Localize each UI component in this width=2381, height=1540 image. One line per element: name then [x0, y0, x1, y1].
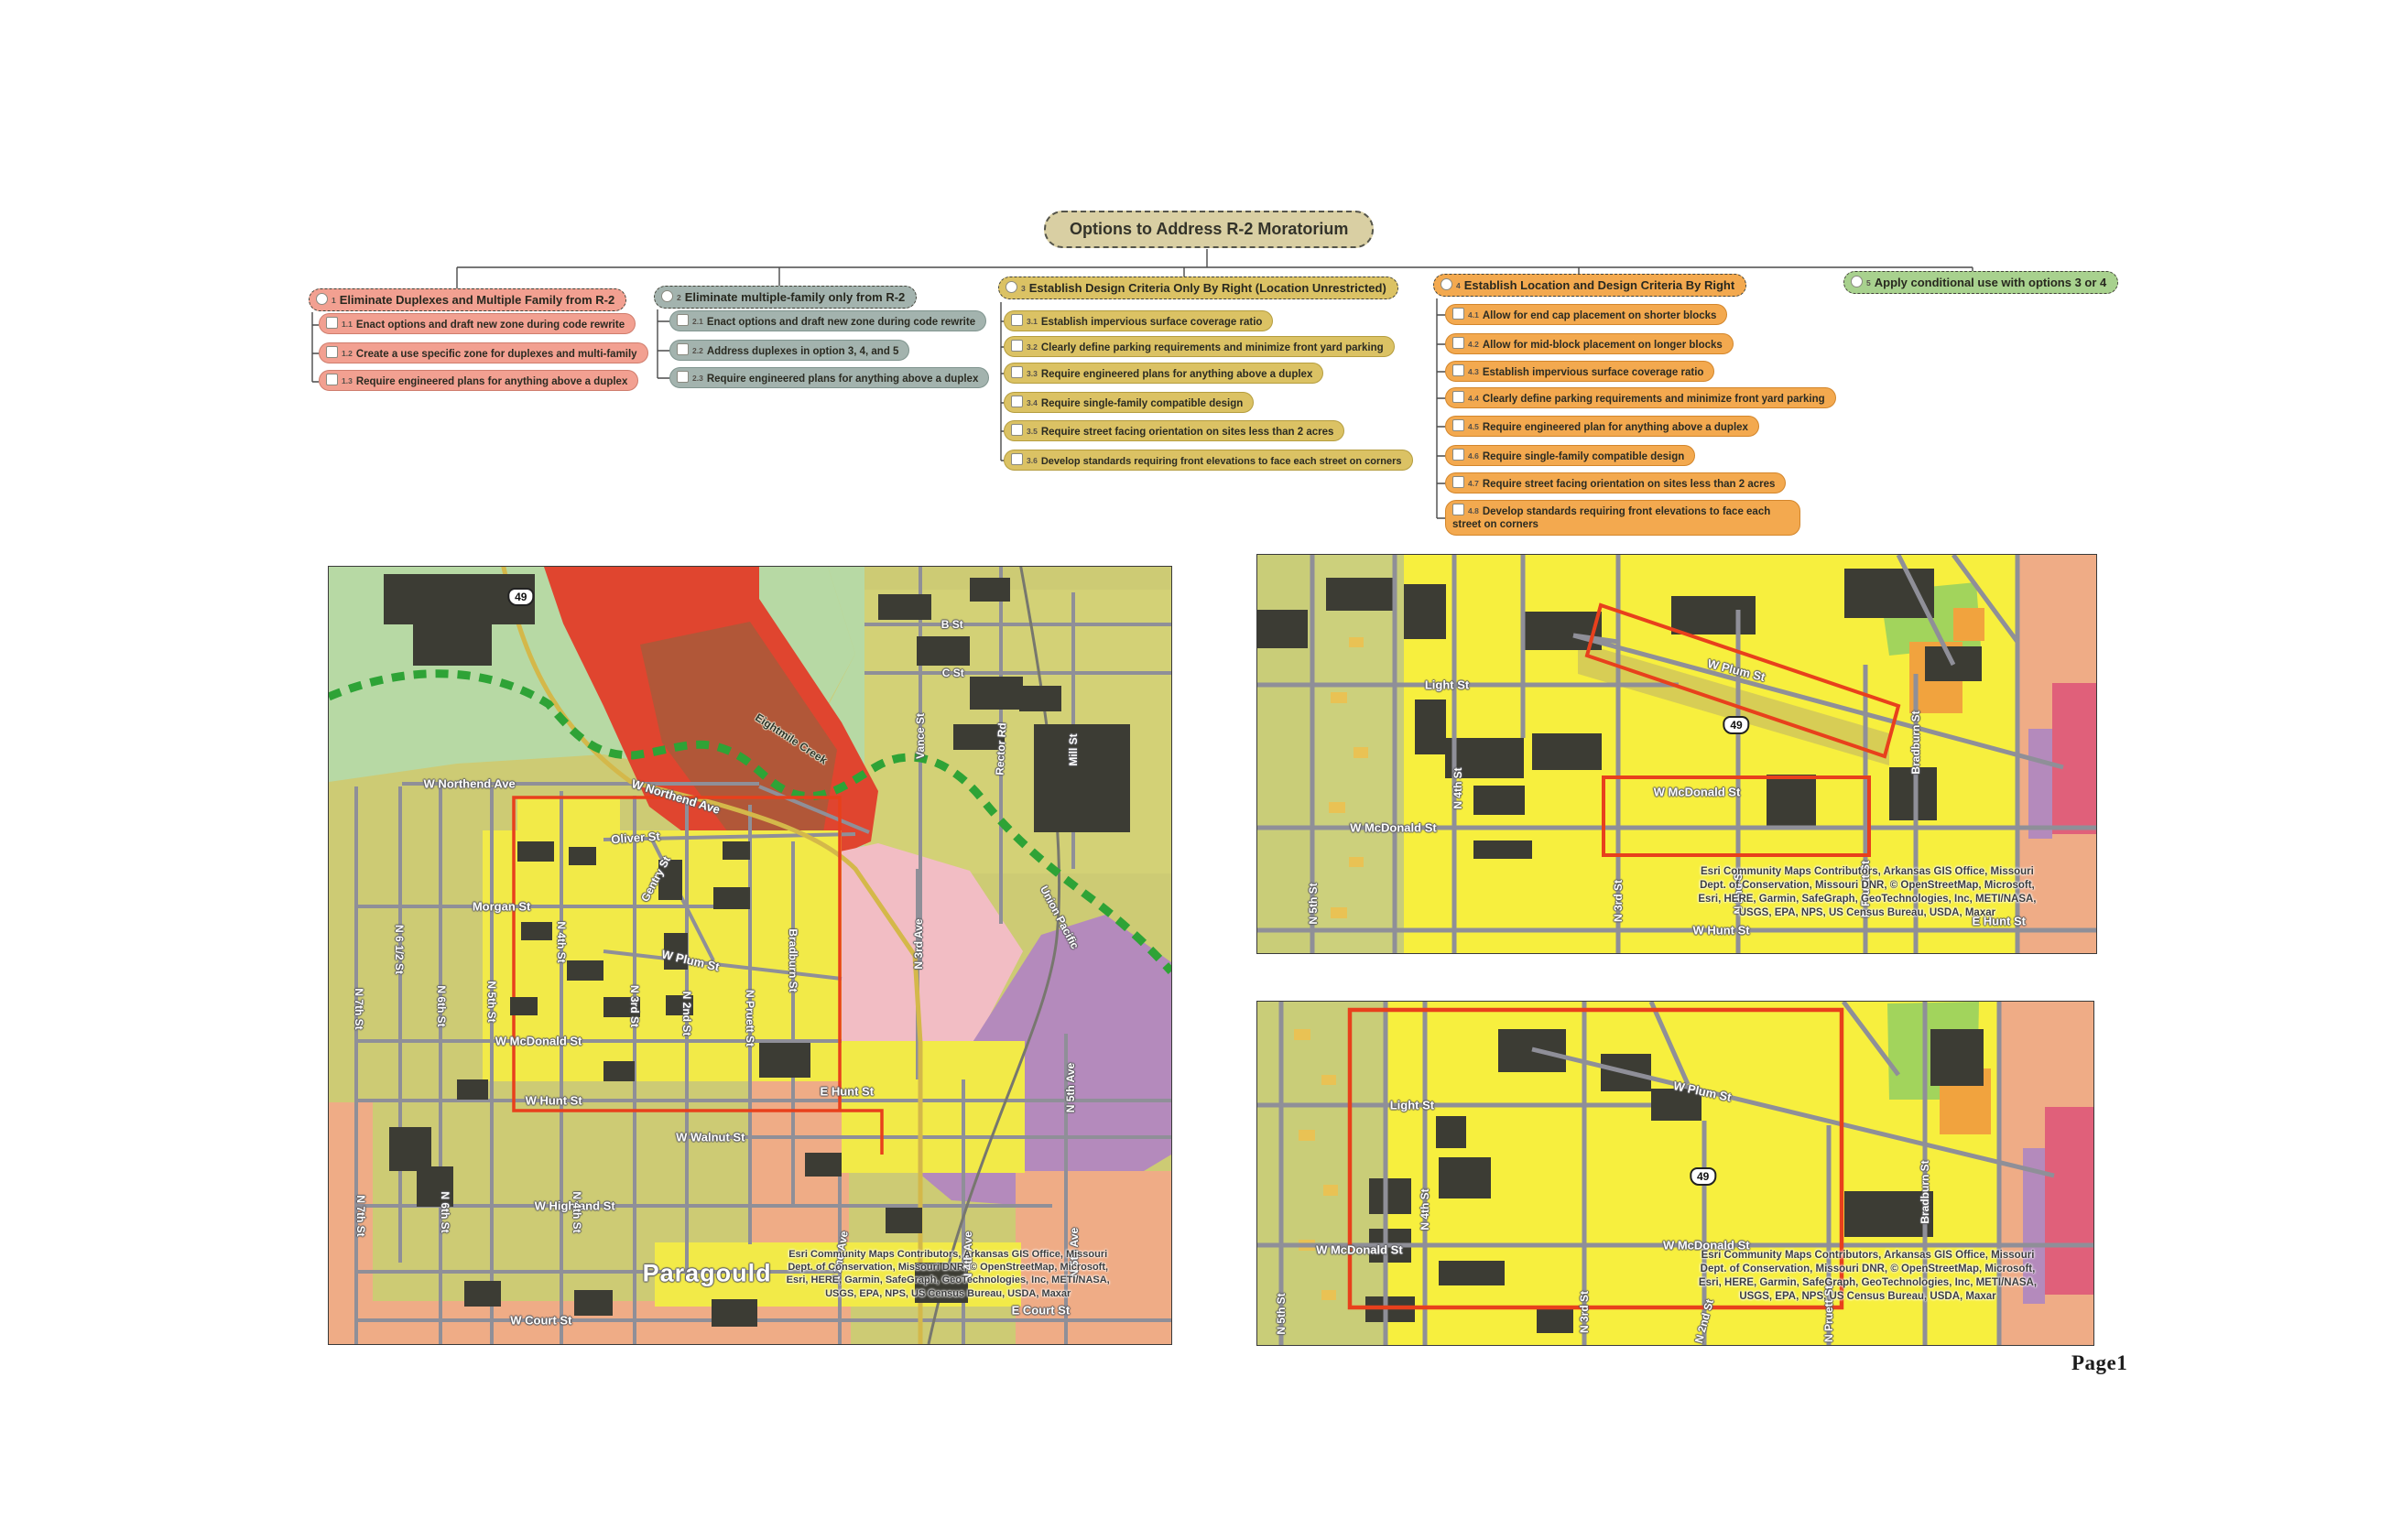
subitem-number: 4.8 — [1468, 506, 1479, 515]
option-number: 5 — [1866, 278, 1871, 287]
subitem-number: 1.1 — [342, 320, 353, 329]
street-label: Light St — [1390, 1098, 1434, 1112]
subitem-label: Develop standards requiring front elevat… — [1041, 456, 1402, 467]
railroad-label: Union Pacific — [1038, 884, 1082, 951]
subitem-number: 3.1 — [1027, 317, 1038, 326]
option-node-4: 4Establish Location and Design Criteria … — [1433, 274, 1746, 297]
street-label: W McDonald St — [1350, 820, 1437, 834]
checkbox-icon — [1452, 391, 1464, 403]
subitem-number: 4.3 — [1468, 367, 1479, 376]
subitem-label: Require engineered plans for anything ab… — [356, 376, 628, 387]
checkbox-icon — [1452, 419, 1464, 431]
subitem-node-4-3: 4.3Establish impervious surface coverage… — [1445, 361, 1714, 382]
street-label: N 2nd St — [1691, 1297, 1715, 1344]
subitem-label: Establish impervious surface coverage ra… — [1041, 317, 1263, 328]
subitem-node-1-1: 1.1Enact options and draft new zone duri… — [319, 313, 636, 334]
subitem-number: 4.4 — [1468, 394, 1479, 403]
subitem-number: 1.3 — [342, 376, 353, 385]
option-number: 1 — [332, 296, 336, 305]
street-label: W McDonald St — [495, 1034, 582, 1047]
attribution-line: USGS, EPA, NPS, US Census Bureau, USDA, … — [1649, 906, 2085, 920]
subitem-number: 4.5 — [1468, 422, 1479, 431]
street-label: W Plum St — [1706, 656, 1767, 684]
option-number: 3 — [1021, 284, 1026, 293]
subitem-node-4-8: 4.8Develop standards requiring front ele… — [1445, 500, 1800, 536]
highway-49-shield: 49 — [507, 588, 534, 606]
flowchart-title: Options to Address R-2 Moratorium — [1044, 211, 1374, 248]
checkbox-icon — [1452, 337, 1464, 349]
street-label: N Pruett St — [744, 990, 756, 1047]
street-label: E Hunt St — [821, 1085, 875, 1099]
street-label: W Plum St — [1672, 1078, 1733, 1103]
subitem-number: 3.2 — [1027, 342, 1038, 352]
subitem-node-4-1: 4.1Allow for end cap placement on shorte… — [1445, 304, 1727, 325]
subitem-number: 2.2 — [692, 346, 703, 355]
street-label: Bradburn St — [1909, 710, 1922, 774]
subitem-node-2-1: 2.1Enact options and draft new zone duri… — [669, 310, 986, 331]
street-label: Bradburn St — [787, 928, 799, 992]
street-label: W Northend Ave — [424, 776, 516, 790]
subitem-number: 4.2 — [1468, 340, 1479, 349]
subitem-node-4-4: 4.4Clearly define parking requirements a… — [1445, 387, 1836, 408]
subitem-number: 4.1 — [1468, 310, 1479, 320]
subitem-node-4-2: 4.2Allow for mid-block placement on long… — [1445, 333, 1734, 354]
document-page: Options to Address R-2 Moratorium 1Elimi… — [0, 0, 2381, 1540]
subitem-number: 4.7 — [1468, 479, 1479, 488]
attribution-line: Dept. of Conservation, Missouri DNR, © O… — [1650, 1263, 2085, 1276]
street-label: N 4th St — [1451, 767, 1464, 808]
subitem-number: 2.1 — [692, 317, 703, 326]
street-label: E Court St — [1012, 1303, 1071, 1317]
street-label: Vance St — [914, 713, 927, 759]
checkbox-icon — [1452, 308, 1464, 320]
subitem-node-1-3: 1.3Require engineered plans for anything… — [319, 370, 638, 391]
checkbox-icon — [1011, 340, 1023, 352]
subitem-label: Require single-family compatible design — [1041, 398, 1243, 409]
subitem-label: Develop standards requiring front elevat… — [1452, 506, 1770, 530]
subitem-number: 4.6 — [1468, 451, 1479, 461]
attribution-line: Esri, HERE, Garmin, SafeGraph, GeoTechno… — [1650, 1276, 2085, 1290]
street-label: C St — [942, 667, 964, 679]
street-label: N 4th St — [571, 1191, 583, 1232]
attribution-line: Esri, HERE, Garmin, SafeGraph, GeoTechno… — [745, 1274, 1150, 1286]
street-label: N 6 1/2 St — [393, 925, 406, 974]
page-number: Page1 — [2071, 1351, 2127, 1375]
subitem-node-3-2: 3.2Clearly define parking requirements a… — [1004, 336, 1395, 357]
subitem-node-4-6: 4.6Require single-family compatible desi… — [1445, 445, 1695, 466]
map-attribution: Esri Community Maps Contributors, Arkans… — [1649, 865, 2085, 920]
subitem-number: 3.5 — [1027, 427, 1038, 436]
attribution-line: Dept. of Conservation, Missouri DNR, © O… — [745, 1261, 1150, 1274]
radio-icon — [1441, 278, 1452, 290]
option-label: Establish Design Criteria Only By Right … — [1029, 281, 1386, 295]
street-label: Gentry St — [638, 854, 673, 904]
street-label: W Walnut St — [676, 1131, 745, 1144]
street-label: W Northend Ave — [630, 776, 722, 817]
option-label: Apply conditional use with options 3 or … — [1875, 276, 2107, 289]
subitem-node-4-5: 4.5Require engineered plan for anything … — [1445, 416, 1759, 437]
subitem-label: Establish impervious surface coverage ra… — [1483, 367, 1704, 378]
subitem-number: 3.6 — [1027, 456, 1038, 465]
street-label: N 3rd St — [1612, 880, 1625, 922]
creek-label: Eightmile Creek — [753, 710, 830, 766]
street-label: Mill St — [1067, 734, 1080, 766]
subitem-node-4-7: 4.7Require street facing orientation on … — [1445, 472, 1786, 493]
subitem-node-2-3: 2.3Require engineered plans for anything… — [669, 367, 989, 388]
subitem-label: Clearly define parking requirements and … — [1041, 342, 1384, 353]
street-label: W McDonald St — [1654, 785, 1741, 798]
subitem-label: Allow for end cap placement on shorter b… — [1483, 310, 1717, 321]
checkbox-icon — [326, 317, 338, 329]
subitem-label: Create a use specific zone for duplexes … — [356, 349, 637, 360]
checkbox-icon — [326, 374, 338, 385]
attribution-line: USGS, EPA, NPS, US Census Bureau, USDA, … — [745, 1287, 1150, 1300]
checkbox-icon — [1011, 424, 1023, 436]
street-label: N 3rd St — [1578, 1291, 1591, 1333]
street-label: Morgan St — [473, 900, 531, 914]
street-label: N 7th St — [354, 1195, 367, 1236]
detail-zoning-map-top: 49Light StN 4th StN 5th StN 3rd StW McDo… — [1256, 554, 2097, 954]
subitem-node-3-6: 3.6Develop standards requiring front ele… — [1004, 450, 1413, 471]
subitem-number: 3.4 — [1027, 398, 1038, 407]
street-label: N 5th Ave — [1064, 1063, 1077, 1112]
subitem-label: Enact options and draft new zone during … — [707, 317, 975, 328]
overview-street-labels: 49W Northend AveW Northend AveOliver StM… — [329, 567, 1171, 1344]
attribution-line: Esri Community Maps Contributors, Arkans… — [745, 1248, 1150, 1261]
street-label: N 4th St — [1419, 1188, 1431, 1230]
subitem-label: Address duplexes in option 3, 4, and 5 — [707, 346, 899, 357]
checkbox-icon — [1452, 476, 1464, 488]
street-label: Oliver St — [611, 830, 660, 847]
checkbox-icon — [1452, 504, 1464, 515]
subitem-node-3-4: 3.4Require single-family compatible desi… — [1004, 392, 1254, 413]
attribution-line: Esri Community Maps Contributors, Arkans… — [1649, 865, 2085, 879]
street-label: W Hunt St — [1693, 924, 1750, 938]
subitem-node-3-1: 3.1Establish impervious surface coverage… — [1004, 310, 1273, 331]
subitem-node-3-3: 3.3Require engineered plans for anything… — [1004, 363, 1323, 384]
street-label: W Hunt St — [526, 1094, 582, 1108]
street-label: N 7th St — [353, 988, 365, 1029]
checkbox-icon — [1452, 364, 1464, 376]
detail-zoning-map-bottom: 49Light StN 4th StW McDonald StN 5th StN… — [1256, 1001, 2094, 1346]
street-label: W Plum St — [660, 947, 721, 973]
checkbox-icon — [677, 343, 689, 355]
street-label: N 2nd St — [680, 992, 693, 1036]
subitem-number: 2.3 — [692, 374, 703, 383]
street-label: N 3rd St — [628, 985, 641, 1027]
street-label: N 5th St — [1307, 883, 1320, 924]
radio-icon — [1006, 281, 1017, 293]
map-attribution: Esri Community Maps Contributors, Arkans… — [1650, 1249, 2085, 1304]
subitem-label: Require engineered plans for anything ab… — [1041, 369, 1313, 380]
subitem-number: 1.2 — [342, 349, 353, 358]
attribution-line: USGS, EPA, NPS, US Census Bureau, USDA, … — [1650, 1290, 2085, 1304]
street-label: Light St — [1425, 678, 1469, 691]
subitem-label: Require engineered plans for anything ab… — [707, 374, 979, 385]
subitem-node-3-5: 3.5Require street facing orientation on … — [1004, 420, 1344, 441]
radio-icon — [1851, 276, 1863, 287]
street-label: B St — [941, 618, 963, 631]
map-attribution: Esri Community Maps Contributors, Arkans… — [745, 1248, 1150, 1300]
option-node-3: 3Establish Design Criteria Only By Right… — [998, 277, 1398, 299]
option-number: 4 — [1456, 281, 1461, 290]
street-label: Rector Rd — [994, 722, 1009, 775]
attribution-line: Esri, HERE, Garmin, SafeGraph, GeoTechno… — [1649, 893, 2085, 906]
radio-icon — [661, 290, 673, 302]
subitem-node-1-2: 1.2Create a use specific zone for duplex… — [319, 342, 648, 363]
attribution-line: Dept. of Conservation, Missouri DNR, © O… — [1649, 879, 2085, 893]
street-label: N 6th St — [439, 1191, 451, 1232]
checkbox-icon — [677, 371, 689, 383]
subitem-label: Require engineered plan for anything abo… — [1483, 422, 1748, 433]
checkbox-icon — [326, 346, 338, 358]
highway-49-shield: 49 — [1723, 716, 1749, 734]
street-label: N 6th St — [435, 985, 448, 1026]
checkbox-icon — [1452, 449, 1464, 461]
street-label: N 5th St — [1275, 1294, 1288, 1335]
subitem-label: Require street facing orientation on sit… — [1483, 479, 1776, 490]
subitem-node-2-2: 2.2Address duplexes in option 3, 4, and … — [669, 340, 909, 361]
checkbox-icon — [1011, 396, 1023, 407]
street-label: N 3rd Ave — [912, 918, 925, 969]
subitem-label: Allow for mid-block placement on longer … — [1483, 340, 1723, 351]
street-label: W Court St — [510, 1313, 571, 1327]
street-label: N 5th St — [485, 981, 498, 1023]
street-label: W McDonald St — [1316, 1243, 1403, 1257]
subitem-label: Enact options and draft new zone during … — [356, 320, 625, 331]
subitem-label: Clearly define parking requirements and … — [1483, 394, 1825, 405]
street-label: Bradburn St — [1919, 1160, 1931, 1223]
option-node-2: 2Eliminate multiple-family only from R-2 — [654, 286, 917, 309]
option-label: Eliminate Duplexes and Multiple Family f… — [340, 293, 615, 307]
attribution-line: Esri Community Maps Contributors, Arkans… — [1650, 1249, 2085, 1263]
checkbox-icon — [1011, 366, 1023, 378]
checkbox-icon — [677, 314, 689, 326]
radio-icon — [316, 293, 328, 305]
option-node-1: 1Eliminate Duplexes and Multiple Family … — [309, 288, 626, 311]
checkbox-icon — [1011, 314, 1023, 326]
overview-zoning-map: 49W Northend AveW Northend AveOliver StM… — [328, 566, 1172, 1345]
highway-49-shield: 49 — [1690, 1167, 1716, 1186]
subitem-number: 3.3 — [1027, 369, 1038, 378]
subitem-label: Require street facing orientation on sit… — [1041, 427, 1334, 438]
option-label: Eliminate multiple-family only from R-2 — [685, 290, 906, 304]
option-number: 2 — [677, 293, 681, 302]
option-node-5: 5Apply conditional use with options 3 or… — [1843, 271, 2118, 294]
street-label: N 4th St — [555, 921, 568, 962]
subitem-label: Require single-family compatible design — [1483, 451, 1684, 462]
checkbox-icon — [1011, 453, 1023, 465]
option-label: Establish Location and Design Criteria B… — [1464, 278, 1734, 292]
